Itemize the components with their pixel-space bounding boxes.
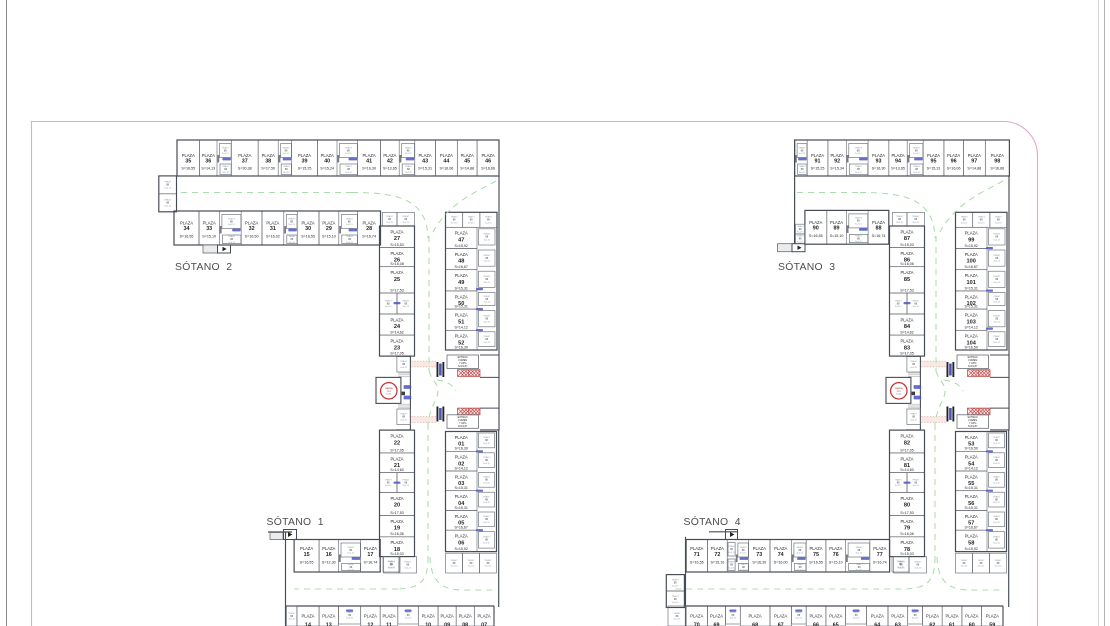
svg-text:S=4,15: S=4,15 (402, 306, 409, 308)
svg-text:S=4,15: S=4,15 (855, 153, 862, 155)
svg-text:S=4,15: S=4,15 (483, 282, 490, 284)
svg-text:83: 83 (904, 345, 910, 351)
svg-text:S=15,31: S=15,31 (964, 486, 978, 490)
svg-text:S=4,15: S=4,15 (483, 342, 490, 344)
svg-text:PLAZA: PLAZA (455, 294, 468, 299)
svg-text:S=16,67: S=16,67 (964, 526, 978, 530)
svg-text:76: 76 (833, 552, 839, 558)
svg-text:PLAZA: PLAZA (182, 153, 195, 158)
svg-text:34: 34 (184, 226, 190, 232)
svg-text:S=15,31: S=15,31 (927, 167, 941, 171)
svg-text:39: 39 (302, 158, 308, 164)
svg-text:PLAZA: PLAZA (266, 221, 279, 226)
svg-text:72: 72 (714, 552, 720, 558)
svg-text:S=4,15: S=4,15 (451, 222, 458, 224)
svg-text:PLAZA: PLAZA (455, 455, 468, 460)
svg-text:85: 85 (904, 277, 910, 283)
svg-text:S=4,15: S=4,15 (483, 261, 490, 263)
svg-text:10: 10 (425, 623, 431, 626)
svg-text:S=4,15: S=4,15 (451, 566, 458, 568)
svg-text:PLAZA: PLAZA (829, 613, 842, 618)
svg-text:92: 92 (834, 158, 840, 164)
svg-text:S=4,15: S=4,15 (288, 619, 295, 621)
svg-text:S=4,15: S=4,15 (910, 419, 917, 421)
svg-text:S=4,15: S=4,15 (978, 566, 985, 568)
svg-text:PLAZA: PLAZA (238, 153, 251, 158)
svg-text:SÓTANO 4: SÓTANO 4 (684, 515, 741, 528)
svg-text:63: 63 (895, 623, 901, 626)
svg-text:S=4,15: S=4,15 (288, 224, 295, 226)
svg-text:S=15,31: S=15,31 (454, 486, 468, 490)
svg-text:PLAZA: PLAZA (947, 153, 960, 158)
svg-text:S=4,15: S=4,15 (856, 570, 863, 572)
svg-text:40: 40 (324, 158, 330, 164)
svg-text:44: 44 (443, 158, 449, 164)
svg-text:48: 48 (458, 259, 464, 265)
svg-text:RAMPA: RAMPA (895, 387, 903, 390)
svg-text:S=15,31: S=15,31 (964, 286, 978, 290)
svg-text:32: 32 (249, 226, 255, 232)
svg-text:PLAZA: PLAZA (965, 455, 978, 460)
svg-text:12: 12 (367, 623, 373, 626)
svg-text:PLAZA: PLAZA (455, 514, 468, 519)
svg-text:S=15,10: S=15,10 (829, 561, 843, 565)
svg-text:S=16,66: S=16,66 (481, 167, 495, 171)
svg-text:S=17,05: S=17,05 (390, 448, 404, 452)
svg-text:S=4,15: S=4,15 (485, 566, 492, 568)
svg-text:S=4,15: S=4,15 (228, 224, 235, 226)
svg-text:103: 103 (967, 319, 976, 325)
svg-text:S=4,15: S=4,15 (348, 570, 355, 572)
svg-text:S=14,60: S=14,60 (390, 468, 404, 472)
svg-text:S=4,15: S=4,15 (468, 566, 475, 568)
svg-text:09: 09 (444, 623, 450, 626)
svg-text:PLAZA: PLAZA (901, 339, 914, 344)
svg-text:08: 08 (462, 623, 468, 626)
svg-text:S=20,38: S=20,38 (238, 167, 252, 171)
svg-text:07: 07 (481, 623, 487, 626)
svg-text:S=4,15: S=4,15 (896, 222, 903, 224)
svg-text:15: 15 (304, 552, 310, 558)
svg-text:73: 73 (756, 552, 762, 558)
svg-text:S=4,15: S=4,15 (388, 567, 395, 569)
svg-text:S=16,55: S=16,55 (690, 561, 704, 565)
svg-text:PLAZA: PLAZA (965, 273, 978, 278)
svg-text:PLAZA: PLAZA (455, 273, 468, 278)
svg-text:59: 59 (989, 623, 995, 626)
svg-text:S=4,15: S=4,15 (404, 567, 411, 569)
svg-text:S=4,15: S=4,15 (400, 419, 407, 421)
svg-text:38: 38 (265, 158, 271, 164)
svg-text:S=16,67: S=16,67 (964, 265, 978, 269)
svg-text:93: 93 (876, 158, 882, 164)
svg-text:S=16,06: S=16,06 (900, 262, 914, 266)
svg-text:S=4,15: S=4,15 (405, 153, 412, 155)
svg-text:S=4,15: S=4,15 (345, 172, 352, 174)
svg-text:S=4,15: S=4,15 (895, 306, 902, 308)
svg-text:S=16,30: S=16,30 (454, 345, 468, 349)
svg-text:S=4,15: S=4,15 (855, 224, 862, 226)
svg-text:PLAZA: PLAZA (965, 294, 978, 299)
svg-text:PLAZA: PLAZA (965, 435, 978, 440)
svg-text:PLAZA: PLAZA (455, 435, 468, 440)
svg-text:S=4,15: S=4,15 (993, 483, 1000, 485)
svg-text:S=16,06: S=16,06 (390, 532, 404, 536)
svg-text:S=4,15: S=4,15 (797, 241, 804, 243)
svg-text:S=15,25: S=15,25 (298, 167, 312, 171)
svg-text:S=4,15: S=4,15 (799, 153, 806, 155)
svg-text:43: 43 (422, 158, 428, 164)
svg-text:S=4,15: S=4,15 (385, 485, 392, 487)
svg-text:PLAZA: PLAZA (690, 546, 703, 551)
svg-text:S=16,30: S=16,30 (362, 167, 376, 171)
svg-text:S=4,15: S=4,15 (405, 172, 412, 174)
svg-text:87: 87 (904, 236, 910, 242)
svg-text:20: 20 (394, 503, 400, 509)
svg-text:S=16,50: S=16,50 (964, 345, 978, 349)
svg-text:30: 30 (305, 226, 311, 232)
svg-text:S=4,15: S=4,15 (674, 619, 681, 621)
svg-text:S=4,15: S=4,15 (740, 553, 747, 555)
svg-text:S=15,31: S=15,31 (454, 506, 468, 510)
svg-text:PLAZA: PLAZA (391, 251, 404, 256)
svg-text:PLAZA: PLAZA (245, 221, 258, 226)
svg-text:S=4,15: S=4,15 (993, 261, 1000, 263)
svg-text:S=16,74: S=16,74 (872, 234, 886, 238)
svg-text:S=16,74: S=16,74 (362, 234, 376, 238)
svg-text:S=4,15: S=4,15 (483, 240, 490, 242)
svg-text:PLAZA: PLAZA (203, 221, 216, 226)
svg-text:S=17,53: S=17,53 (390, 511, 404, 515)
svg-text:PLAZA: PLAZA (965, 494, 978, 499)
svg-text:S=4,15: S=4,15 (728, 552, 735, 554)
svg-text:PLAZA: PLAZA (901, 317, 914, 322)
svg-text:PLAZA: PLAZA (301, 613, 314, 618)
svg-text:S=4,15: S=4,15 (400, 367, 407, 369)
svg-text:PLAZA: PLAZA (809, 613, 822, 618)
svg-text:68: 68 (752, 623, 758, 626)
svg-text:PLAZA: PLAZA (774, 546, 787, 551)
svg-text:S=15,92: S=15,92 (964, 244, 978, 248)
svg-text:S=4,15: S=4,15 (961, 566, 968, 568)
svg-text:PLAZA: PLAZA (811, 153, 824, 158)
svg-text:42: 42 (387, 158, 393, 164)
svg-text:80: 80 (904, 503, 910, 509)
svg-text:S=19,87: S=19,87 (968, 425, 978, 428)
svg-text:S=4,15: S=4,15 (164, 188, 171, 190)
svg-text:PLAZA: PLAZA (901, 540, 914, 545)
svg-text:PLAZA: PLAZA (891, 153, 904, 158)
svg-text:S=15,31: S=15,31 (454, 286, 468, 290)
svg-text:95: 95 (931, 158, 937, 164)
svg-text:S=16,06: S=16,06 (900, 532, 914, 536)
svg-text:S=4,15: S=4,15 (799, 172, 806, 174)
svg-text:PLAZA: PLAZA (965, 514, 978, 519)
svg-text:79: 79 (904, 526, 910, 532)
svg-text:S=16,55: S=16,55 (181, 167, 195, 171)
svg-text:S=4,15: S=4,15 (346, 618, 353, 620)
svg-text:S=17,05: S=17,05 (900, 448, 914, 452)
svg-text:S=4,15: S=4,15 (386, 222, 393, 224)
svg-text:S=4,15: S=4,15 (483, 543, 490, 545)
svg-text:84: 84 (904, 324, 911, 330)
svg-text:S=15,03: S=15,03 (900, 552, 914, 556)
svg-text:S=4,15: S=4,15 (402, 222, 409, 224)
svg-text:PLAZA: PLAZA (965, 231, 978, 236)
svg-text:S=16,66: S=16,66 (990, 167, 1004, 171)
svg-text:PLAZA: PLAZA (391, 229, 404, 234)
svg-text:S=15,92: S=15,92 (454, 244, 468, 248)
svg-text:PLAZA: PLAZA (690, 613, 703, 618)
svg-text:S=12,30: S=12,30 (322, 561, 336, 565)
svg-text:PLAZA: PLAZA (441, 613, 454, 618)
svg-text:S=15,53: S=15,53 (390, 243, 404, 247)
svg-text:17: 17 (367, 552, 373, 558)
svg-text:99: 99 (968, 238, 974, 244)
svg-text:75: 75 (813, 552, 819, 558)
svg-text:S=16,74: S=16,74 (873, 561, 887, 565)
svg-text:S=16,67: S=16,67 (454, 526, 468, 530)
svg-text:PLAZA: PLAZA (322, 221, 335, 226)
svg-text:33: 33 (206, 226, 212, 232)
svg-text:74: 74 (778, 552, 784, 558)
svg-text:S=4,15: S=4,15 (978, 222, 985, 224)
svg-text:16: 16 (326, 552, 332, 558)
svg-text:S=4,15: S=4,15 (483, 302, 490, 304)
svg-text:60: 60 (969, 623, 975, 626)
svg-text:PLAZA: PLAZA (478, 613, 491, 618)
svg-text:S=4,15: S=4,15 (345, 153, 352, 155)
svg-text:PLAZA: PLAZA (262, 153, 275, 158)
svg-text:S=16,67: S=16,67 (454, 265, 468, 269)
svg-text:S=4,15: S=4,15 (993, 321, 1000, 323)
svg-text:S=16,74: S=16,74 (363, 561, 377, 565)
svg-text:S=4,15: S=4,15 (222, 153, 229, 155)
svg-text:PLAZA: PLAZA (391, 496, 404, 501)
svg-text:41: 41 (366, 158, 372, 164)
svg-text:S=4,15: S=4,15 (993, 443, 1000, 445)
svg-text:PLAZA: PLAZA (831, 153, 844, 158)
svg-text:71: 71 (694, 552, 700, 558)
svg-text:S=4,15: S=4,15 (483, 502, 490, 504)
svg-text:S=4,15: S=4,15 (740, 570, 747, 572)
svg-text:S=4,15: S=4,15 (672, 602, 679, 604)
svg-text:12,00: 12,00 (386, 393, 392, 395)
svg-text:S=16,30: S=16,30 (872, 167, 886, 171)
svg-text:PLAZA: PLAZA (710, 613, 723, 618)
svg-text:S=4,15: S=4,15 (347, 553, 354, 555)
svg-text:PLAZA: PLAZA (965, 252, 978, 257)
svg-text:PLAZA: PLAZA (391, 456, 404, 461)
svg-text:S=15,92: S=15,92 (454, 547, 468, 551)
svg-text:27: 27 (394, 236, 400, 242)
svg-text:98: 98 (994, 158, 1000, 164)
svg-text:PLAZA: PLAZA (321, 153, 334, 158)
svg-text:SÓTANO 2: SÓTANO 2 (175, 260, 232, 273)
svg-text:24: 24 (394, 324, 401, 330)
svg-text:S=15,34: S=15,34 (830, 167, 844, 171)
svg-text:PLAZA: PLAZA (363, 221, 376, 226)
svg-text:12,00: 12,00 (896, 393, 902, 395)
svg-text:S=17,05: S=17,05 (390, 352, 404, 356)
svg-text:64: 64 (874, 623, 880, 626)
svg-text:PLAZA: PLAZA (926, 613, 939, 618)
svg-text:S=16,06: S=16,06 (947, 167, 961, 171)
svg-text:77: 77 (877, 552, 883, 558)
svg-text:S=4,15: S=4,15 (895, 485, 902, 487)
svg-text:S=4,15: S=4,15 (222, 172, 229, 174)
svg-text:S=4,15: S=4,15 (483, 522, 490, 524)
svg-text:S=15,92: S=15,92 (964, 547, 978, 551)
svg-text:S=4,15: S=4,15 (795, 618, 802, 620)
svg-text:36: 36 (205, 158, 211, 164)
svg-text:PLAZA: PLAZA (459, 613, 472, 618)
svg-text:S=4,15: S=4,15 (993, 522, 1000, 524)
svg-text:S=15,31: S=15,31 (454, 305, 468, 309)
svg-text:S=14,60: S=14,60 (900, 468, 914, 472)
svg-text:S=4,15: S=4,15 (402, 485, 409, 487)
svg-text:S=14,62: S=14,62 (900, 331, 914, 335)
svg-text:PLAZA: PLAZA (391, 519, 404, 524)
svg-text:S=4,15: S=4,15 (995, 566, 1002, 568)
svg-text:11: 11 (386, 623, 392, 626)
svg-text:PLAZA: PLAZA (968, 153, 981, 158)
svg-text:PLAZA: PLAZA (872, 220, 885, 225)
svg-text:S=16,08: S=16,08 (390, 262, 404, 266)
svg-text:PLAZA: PLAZA (829, 546, 842, 551)
svg-text:19: 19 (394, 526, 400, 532)
svg-text:S=16,55: S=16,55 (809, 561, 823, 565)
svg-text:S=4,15: S=4,15 (993, 342, 1000, 344)
svg-text:PLAZA: PLAZA (965, 474, 978, 479)
svg-text:66: 66 (813, 623, 819, 626)
svg-text:S=15,10: S=15,10 (202, 234, 216, 238)
svg-text:100: 100 (967, 259, 976, 265)
svg-text:S=4,15: S=4,15 (672, 585, 679, 587)
svg-text:28: 28 (366, 226, 372, 232)
svg-text:S=19,87: S=19,87 (968, 365, 978, 368)
svg-text:S=4,15: S=4,15 (485, 222, 492, 224)
svg-text:49: 49 (458, 280, 464, 286)
svg-text:S=4,15: S=4,15 (856, 553, 863, 555)
svg-text:S=16,55: S=16,55 (180, 234, 194, 238)
svg-text:S=4,15: S=4,15 (405, 618, 412, 620)
svg-text:S=4,15: S=4,15 (910, 367, 917, 369)
svg-text:S=15,24: S=15,24 (320, 167, 334, 171)
svg-text:PLAZA: PLAZA (749, 613, 762, 618)
svg-text:69: 69 (714, 623, 720, 626)
svg-text:SÓTANO 1: SÓTANO 1 (267, 515, 324, 528)
svg-text:S=4,15: S=4,15 (346, 242, 353, 244)
svg-text:PLAZA: PLAZA (322, 613, 335, 618)
svg-text:PLAZA: PLAZA (809, 220, 822, 225)
svg-text:PLAZA: PLAZA (901, 251, 914, 256)
svg-text:PLAZA: PLAZA (391, 317, 404, 322)
svg-text:S=14,12: S=14,12 (454, 466, 468, 470)
svg-text:PLAZA: PLAZA (322, 546, 335, 551)
svg-text:S=4,15: S=4,15 (797, 570, 804, 572)
svg-text:61: 61 (949, 623, 955, 626)
svg-text:89: 89 (834, 226, 840, 232)
svg-text:S=16,55: S=16,55 (300, 561, 314, 565)
svg-text:PLAZA: PLAZA (302, 221, 315, 226)
svg-text:S=14,88: S=14,88 (967, 167, 981, 171)
svg-text:PLAZA: PLAZA (965, 313, 978, 318)
svg-text:PLAZA: PLAZA (901, 270, 914, 275)
svg-text:S=4,15: S=4,15 (897, 567, 904, 569)
svg-text:SÓTANO 3: SÓTANO 3 (778, 260, 835, 273)
svg-text:PLAZA: PLAZA (871, 613, 884, 618)
svg-text:06: 06 (458, 540, 464, 546)
svg-text:S=4,15: S=4,15 (995, 222, 1002, 224)
svg-text:S=4,15: S=4,15 (961, 222, 968, 224)
svg-text:PLAZA: PLAZA (965, 534, 978, 539)
svg-text:82: 82 (904, 440, 910, 446)
svg-text:S=16,06: S=16,06 (439, 167, 453, 171)
svg-text:PLAZA: PLAZA (364, 546, 377, 551)
svg-text:PLAZA: PLAZA (391, 339, 404, 344)
svg-text:PLAZA: PLAZA (419, 153, 432, 158)
svg-text:PLAZA: PLAZA (300, 546, 313, 551)
svg-text:S=17,50: S=17,50 (261, 167, 275, 171)
svg-text:13: 13 (326, 623, 332, 626)
svg-text:PLAZA: PLAZA (945, 613, 958, 618)
svg-text:PLAZA: PLAZA (422, 613, 435, 618)
svg-text:S=13,65: S=13,65 (383, 167, 397, 171)
svg-text:96: 96 (951, 158, 957, 164)
svg-text:S=4,15: S=4,15 (912, 618, 919, 620)
svg-text:PLAZA: PLAZA (965, 334, 978, 339)
svg-text:65: 65 (833, 623, 839, 626)
svg-text:PLAZA: PLAZA (363, 153, 376, 158)
svg-text:S=4,15: S=4,15 (483, 443, 490, 445)
svg-text:S=15,03: S=15,03 (900, 243, 914, 247)
svg-text:S=16,55: S=16,55 (301, 234, 315, 238)
svg-text:S=4,15: S=4,15 (483, 463, 490, 465)
svg-text:25: 25 (394, 277, 400, 283)
svg-text:97: 97 (971, 158, 977, 164)
svg-text:S=4,15: S=4,15 (164, 205, 171, 207)
svg-text:S=19,87: S=19,87 (458, 425, 468, 428)
svg-text:PLAZA: PLAZA (986, 613, 999, 618)
svg-text:PLAZA: PLAZA (482, 153, 495, 158)
svg-text:PLAZA: PLAZA (901, 229, 914, 234)
svg-text:S=4,15: S=4,15 (289, 242, 296, 244)
svg-text:S=4,15: S=4,15 (912, 306, 919, 308)
svg-text:S=4,15: S=4,15 (228, 242, 235, 244)
svg-text:47: 47 (458, 238, 464, 244)
svg-text:PLAZA: PLAZA (364, 613, 377, 618)
svg-text:PLAZA: PLAZA (461, 153, 474, 158)
svg-text:PLAZA: PLAZA (391, 270, 404, 275)
svg-text:S=4,15: S=4,15 (913, 172, 920, 174)
svg-text:PLAZA: PLAZA (391, 540, 404, 545)
svg-text:PLAZA: PLAZA (809, 546, 822, 551)
svg-text:S=15,25: S=15,25 (811, 167, 825, 171)
svg-text:PLAZA: PLAZA (391, 434, 404, 439)
svg-text:S=4,15: S=4,15 (912, 222, 919, 224)
svg-text:PLAZA: PLAZA (455, 474, 468, 479)
svg-text:S=15,31: S=15,31 (964, 506, 978, 510)
svg-text:S=15,10: S=15,10 (830, 234, 844, 238)
svg-text:S=4,15: S=4,15 (993, 502, 1000, 504)
svg-text:S=16,02: S=16,02 (266, 234, 280, 238)
svg-text:37: 37 (242, 158, 248, 164)
svg-text:101: 101 (967, 280, 976, 286)
svg-text:S=16,30: S=16,30 (454, 447, 468, 451)
svg-text:62: 62 (929, 623, 935, 626)
svg-text:S=4,15: S=4,15 (385, 306, 392, 308)
